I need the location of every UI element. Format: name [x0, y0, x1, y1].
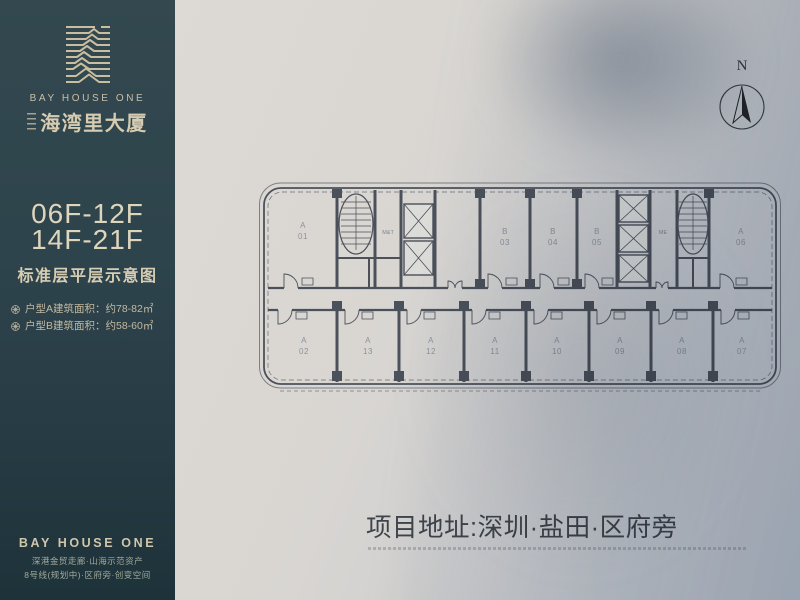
project-address: 项目地址:深圳·盐田·区府旁	[366, 507, 726, 544]
core-label-right: ME	[659, 230, 668, 236]
unit-label: 03	[500, 238, 510, 247]
board-photo: N	[0, 0, 800, 600]
unit-label: A	[617, 336, 623, 345]
partitions-top	[337, 190, 709, 288]
plan-outline	[264, 188, 776, 384]
elevators-left	[404, 204, 433, 275]
floor-plan: A 01 B 03 B 04 B 05 A 06 A 02 A 13 A 12 …	[258, 180, 782, 404]
unit-label: A	[300, 221, 306, 230]
brand-logo	[64, 24, 112, 84]
bullet-star-icon	[11, 322, 20, 331]
spec-text-a: 户型A建筑面积：约78-82㎡	[25, 301, 153, 318]
unit-label: A	[301, 336, 307, 345]
unit-label: 08	[677, 347, 687, 356]
north-label: N	[713, 58, 771, 75]
unit-label: B	[594, 227, 600, 236]
unit-label: A	[679, 336, 685, 345]
unit-label: 01	[298, 232, 308, 241]
north-arrow: N	[713, 58, 771, 140]
stair-right	[678, 194, 708, 254]
unit-label: 10	[552, 347, 562, 356]
unit-label: 04	[548, 238, 558, 247]
sidebar-footer: BAY HOUSE ONE 深港金贸走廊·山海示范资产 8号线(规划中)·区府旁…	[0, 536, 175, 581]
brand-prefix-mark	[27, 113, 36, 130]
spec-row-a: 户型A建筑面积：约78-82㎡	[11, 301, 171, 318]
core-label-left: M&T	[382, 230, 394, 236]
unit-label: 06	[736, 238, 746, 247]
unit-label: A	[365, 336, 371, 345]
elevators-right	[619, 195, 648, 282]
unit-label: 13	[363, 347, 373, 356]
spec-row-b: 户型B建筑面积：约58-60㎡	[11, 318, 171, 335]
spec-text-b: 户型B建筑面积：约58-60㎡	[25, 318, 153, 335]
unit-spec-list: 户型A建筑面积：约78-82㎡ 户型B建筑面积：约58-60㎡	[11, 301, 171, 335]
unit-label: A	[492, 336, 498, 345]
brand-name-cn: 海湾里大厦	[40, 107, 148, 136]
unit-label: 02	[299, 347, 309, 356]
doors	[278, 274, 735, 324]
footer-tagline-1: 深港金贸走廊·山海示范资产	[0, 555, 175, 567]
north-arrow-icon	[713, 75, 771, 137]
footer-tagline-2: 8号线(规划中)·区府旁·创变空间	[0, 569, 175, 581]
fine-print-line	[368, 547, 746, 550]
unit-label: 05	[592, 238, 602, 247]
bullet-star-icon	[11, 305, 20, 314]
brand-name-row: 海湾里大厦	[0, 107, 175, 136]
unit-label: A	[554, 336, 560, 345]
unit-label: 11	[490, 347, 499, 356]
core-walls	[337, 258, 709, 288]
unit-label: A	[428, 336, 434, 345]
unit-label: A	[739, 336, 745, 345]
display-board: N	[175, 0, 800, 600]
unit-label: B	[550, 227, 556, 236]
unit-label: A	[738, 227, 744, 236]
unit-label: 09	[615, 347, 625, 356]
footer-brand-en: BAY HOUSE ONE	[0, 536, 175, 550]
brand-name-en: BAY HOUSE ONE	[0, 93, 175, 104]
unit-label: 12	[426, 347, 436, 356]
floor-range-line2: 14F-21F	[0, 227, 175, 253]
floor-range: 06F-12F 14F-21F	[0, 201, 175, 253]
plan-subtitle: 标准层平层示意图	[0, 262, 175, 286]
brand-panel: BAY HOUSE ONE 海湾里大厦 06F-12F 14F-21F 标准层平…	[0, 0, 175, 600]
service-boxes	[296, 278, 749, 319]
stair-left	[339, 194, 373, 254]
unit-label: 07	[737, 347, 747, 356]
wave-logo-icon	[64, 24, 112, 84]
unit-label: B	[502, 227, 508, 236]
